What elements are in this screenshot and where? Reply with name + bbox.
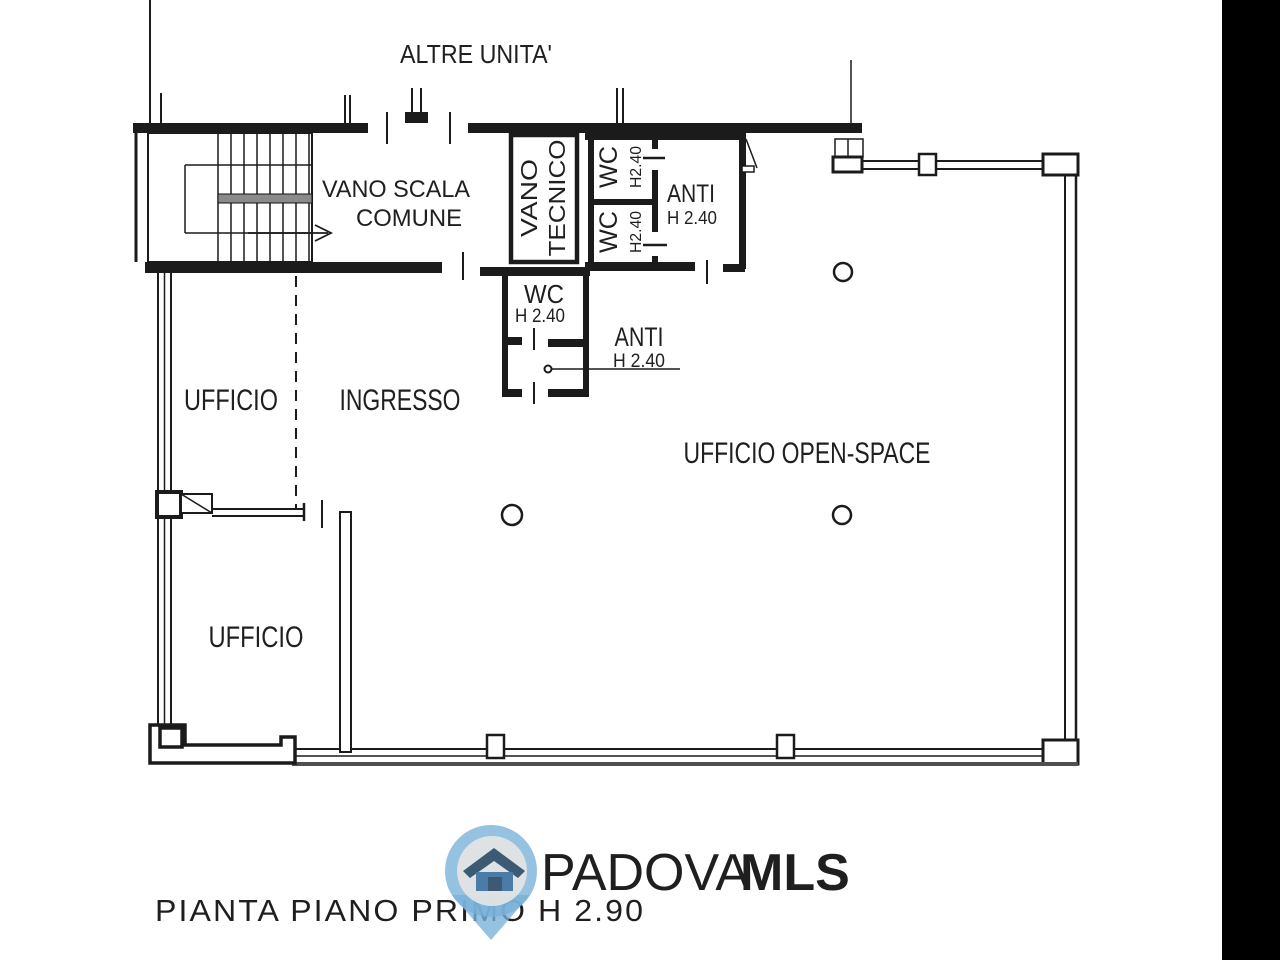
label-vano-scala: VANO SCALA <box>322 176 470 203</box>
light-symbol-icon <box>834 263 852 281</box>
brand-text-padova: PADOVA <box>541 844 750 902</box>
label-anti-lower-height: H 2.40 <box>613 351 665 372</box>
top-wall-band-left <box>133 123 368 133</box>
wc-anti-block <box>585 133 863 284</box>
label-vano-tecnico-2: TECNICO <box>544 140 570 257</box>
label-altre-unita: ALTRE UNITA' <box>400 39 552 69</box>
corner-pillar <box>1043 154 1078 175</box>
label-wc-bottom: WC <box>595 211 623 253</box>
light-symbol-icon <box>502 505 522 525</box>
wc-divider-wall <box>588 199 653 205</box>
wall-segment <box>508 337 522 345</box>
interior-walls <box>150 272 351 763</box>
label-wc-top: WC <box>595 146 623 188</box>
label-vano-tecnico: VANO <box>516 159 542 237</box>
wall-segment <box>548 339 583 347</box>
door-swing <box>746 139 757 168</box>
wall-segment <box>585 262 695 271</box>
wall-segment <box>583 276 589 397</box>
pillar-base <box>405 112 428 123</box>
wall-segment <box>502 276 508 397</box>
top-wall-band-right <box>468 123 862 133</box>
label-ingresso: INGRESSO <box>340 384 461 417</box>
pillar <box>835 139 863 157</box>
stair-rail <box>218 194 312 203</box>
label-ufficio-upper: UFFICIO <box>184 384 278 417</box>
leader-dot <box>545 366 552 373</box>
label-wc-top-height: H2.40 <box>628 146 645 188</box>
label-vano-scala-2: COMUNE <box>356 205 462 232</box>
window-mullion <box>487 735 504 758</box>
anti-right-wall <box>739 140 746 269</box>
wall-segment <box>480 267 590 276</box>
wall-segment <box>585 133 746 140</box>
label-anti-upper: ANTI <box>667 180 715 208</box>
corner-pillar <box>160 728 182 747</box>
corner-pillar <box>1043 740 1078 764</box>
label-wc-main-height: H 2.40 <box>515 306 565 327</box>
stair-bottom-wall <box>145 262 442 273</box>
wall-pillar <box>157 492 181 517</box>
wall-segment <box>548 389 583 397</box>
wall-segment <box>652 140 658 149</box>
wall-segment <box>508 389 522 397</box>
label-wc-main: WC <box>524 279 564 309</box>
window-mullion <box>777 735 794 758</box>
label-anti-upper-height: H 2.40 <box>667 208 717 228</box>
office-partition-wall <box>340 512 351 752</box>
door-leaf <box>742 166 754 172</box>
brand-text-mls: MLS <box>740 844 850 902</box>
label-ufficio-lower: UFFICIO <box>209 621 304 654</box>
light-symbol-icon <box>833 506 851 524</box>
scan-edge-band <box>1222 0 1280 960</box>
label-wc-bottom-height: H2.40 <box>628 211 645 253</box>
wall-segment <box>652 170 658 232</box>
window-mullion <box>919 154 936 175</box>
floor-plan-svg: ALTRE UNITA' VANO SCALA COMUNE VANO TECN… <box>0 0 1280 960</box>
pillar <box>833 157 862 172</box>
label-ufficio-open-space: UFFICIO OPEN-SPACE <box>684 437 931 470</box>
brand-logo: PADOVA MLS <box>445 825 850 940</box>
label-anti-lower: ANTI <box>615 322 664 352</box>
house-door <box>488 877 502 891</box>
